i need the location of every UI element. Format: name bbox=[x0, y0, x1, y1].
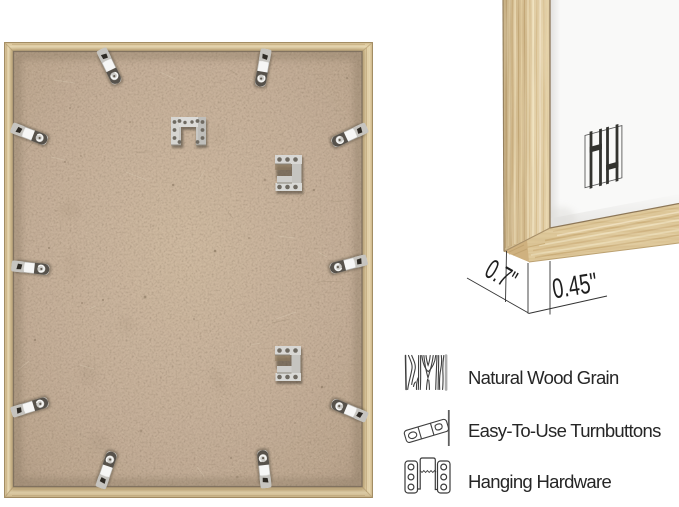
svg-text:Natural Wood Grain: Natural Wood Grain bbox=[468, 367, 619, 388]
svg-text:Easy-To-Use Turnbuttons: Easy-To-Use Turnbuttons bbox=[468, 420, 661, 441]
svg-text:Hanging Hardware: Hanging Hardware bbox=[468, 471, 611, 492]
svg-text:0.45": 0.45" bbox=[550, 267, 599, 305]
